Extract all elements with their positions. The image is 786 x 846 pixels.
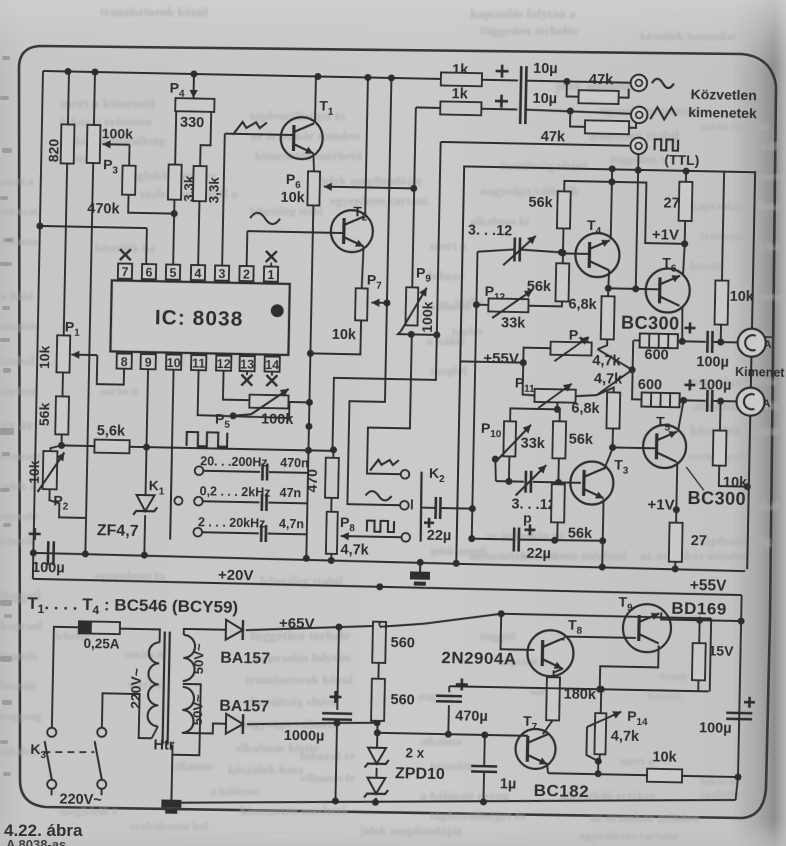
svg-text:10k: 10k	[729, 289, 754, 305]
svg-text:10k: 10k	[280, 190, 305, 206]
svg-text:+55V: +55V	[483, 350, 519, 368]
svg-text:6: 6	[145, 266, 152, 280]
svg-text:10k: 10k	[652, 749, 677, 765]
svg-text:az áramkör minden: az áramkör minden	[590, 810, 700, 825]
svg-text:A: A	[762, 398, 770, 410]
svg-text:(TTL): (TTL)	[664, 151, 699, 168]
svg-text:47k: 47k	[541, 129, 566, 145]
svg-text:56k: 56k	[528, 195, 553, 211]
svg-text:BC300: BC300	[621, 313, 680, 334]
svg-text:100k: 100k	[261, 411, 295, 428]
svg-text:100k: 100k	[102, 125, 134, 142]
svg-text:alkalma: alkalma	[420, 734, 461, 748]
svg-text:kapcsolás fol: kapcsolás fol	[690, 198, 762, 213]
svg-text:BC300: BC300	[687, 488, 746, 509]
svg-text:50V~: 50V~	[191, 643, 207, 674]
svg-text:22µ: 22µ	[427, 528, 452, 544]
svg-text:10µ: 10µ	[533, 61, 558, 77]
svg-text:10µ: 10µ	[532, 91, 557, 107]
svg-text:100µ: 100µ	[699, 720, 732, 737]
svg-text:készülék haszn: készülék haszn	[690, 424, 779, 439]
svg-text:10k: 10k	[26, 460, 42, 484]
svg-text:6,8k: 6,8k	[568, 297, 597, 314]
svg-text:6,8k: 6,8k	[571, 401, 600, 418]
svg-text:a há: a há	[758, 239, 780, 253]
svg-text:600: 600	[644, 347, 669, 363]
svg-text:14: 14	[265, 358, 279, 372]
svg-text:a háló: a háló	[0, 288, 34, 303]
svg-text:10: 10	[167, 356, 181, 370]
svg-text:3. . .12: 3. . .12	[511, 496, 556, 513]
svg-text:vill: vill	[762, 139, 779, 153]
svg-text:kimenetek: kimenetek	[688, 104, 757, 121]
svg-text:56k: 56k	[36, 402, 52, 426]
svg-text:13: 13	[240, 357, 254, 371]
svg-text:9: 9	[145, 356, 152, 370]
svg-text:1k: 1k	[451, 86, 468, 102]
svg-text:56k: 56k	[569, 432, 594, 448]
svg-text:+1V: +1V	[647, 496, 674, 514]
svg-text:+55V: +55V	[690, 577, 728, 595]
svg-text:820: 820	[45, 138, 61, 162]
svg-text:12: 12	[217, 357, 231, 371]
svg-text:330: 330	[180, 115, 205, 131]
svg-text:villamos: villamos	[170, 759, 213, 773]
svg-text:2 . . . 20kHz: 2 . . . 20kHz	[198, 515, 266, 530]
svg-text:jelek amplitúdóját: jelek amplitúdóját	[319, 173, 423, 188]
svg-text:27: 27	[663, 195, 679, 211]
svg-text:lehetől: lehetől	[0, 534, 35, 548]
svg-text:függetl: függetl	[480, 629, 516, 643]
svg-text:tápfesz: tápfesz	[0, 384, 37, 398]
svg-text:mert: mert	[760, 169, 785, 183]
svg-text:p: p	[523, 510, 532, 526]
svg-text:100k: 100k	[419, 301, 436, 333]
svg-text:fokozat: fokozat	[0, 204, 38, 218]
svg-text:IC: 8038: IC: 8038	[155, 306, 244, 331]
svg-text:A: A	[764, 339, 772, 351]
svg-text:3,3k: 3,3k	[206, 177, 222, 204]
svg-text:fokozat er: fokozat er	[300, 748, 356, 763]
svg-text:tranziszto: tranziszto	[700, 228, 755, 243]
svg-text:Közvetlen: Közvetlen	[691, 86, 757, 103]
svg-text:0,2 . . . 2kHz: 0,2 . . . 2kHz	[199, 484, 270, 499]
svg-text:feszült: feszült	[690, 259, 723, 273]
svg-text:jelek amplitúdóját: jelek amplitúdóját	[359, 823, 463, 838]
svg-text:BD169: BD169	[671, 599, 727, 619]
svg-text:egyenle: egyenle	[0, 509, 39, 523]
svg-text:4,7k: 4,7k	[340, 542, 369, 559]
svg-text:mert a: mert a	[0, 174, 34, 188]
svg-text:20. . .200Hz: 20. . .200Hz	[200, 454, 268, 469]
svg-text:2N2904A: 2N2904A	[441, 648, 517, 669]
svg-text:11: 11	[192, 357, 206, 371]
svg-text:4: 4	[194, 267, 201, 281]
svg-text:560: 560	[390, 635, 415, 651]
svg-text:1: 1	[267, 268, 274, 282]
svg-text:tranz: tranz	[660, 669, 688, 683]
svg-text:560: 560	[390, 692, 415, 708]
svg-text:2: 2	[243, 268, 250, 282]
svg-text:Kimenet: Kimenet	[735, 365, 785, 380]
svg-text:+20V: +20V	[218, 567, 254, 585]
svg-text:során ügyelni: során ügyelni	[700, 119, 770, 133]
svg-text:készülék hasz: készülék hasz	[228, 762, 304, 777]
svg-text:BC182: BC182	[534, 781, 590, 801]
svg-text:47n: 47n	[279, 486, 301, 500]
svg-text:4,7k: 4,7k	[611, 728, 640, 745]
svg-text:7: 7	[121, 265, 128, 279]
svg-text:4,7n: 4,7n	[279, 517, 304, 531]
svg-text:szabályozn: szabályozn	[700, 786, 761, 801]
svg-text:független terhelés: független terhelés	[480, 23, 578, 38]
svg-text:470: 470	[304, 469, 320, 493]
svg-text:a hálózati: a hálózati	[210, 784, 260, 798]
svg-text:33k: 33k	[520, 436, 545, 452]
svg-text:50V~: 50V~	[190, 694, 206, 725]
svg-text:foko: foko	[760, 199, 783, 213]
svg-text:kimenetén mérhető: kimenetén mérhető	[240, 803, 348, 818]
svg-text:tranzisztorok közül: tranzisztorok közül	[100, 4, 208, 19]
svg-text:egyenletes tartani: egyenletes tartani	[600, 103, 698, 118]
svg-text:470n: 470n	[280, 456, 309, 471]
svg-text:10k: 10k	[36, 345, 52, 369]
svg-text:kapcsolás folytán a: kapcsolás folytán a	[470, 6, 576, 21]
svg-text:0,25A: 0,25A	[83, 636, 120, 652]
svg-text:jelek ampli: jelek ampli	[429, 544, 488, 558]
svg-text:A 8038-as: A 8038-as	[6, 837, 66, 846]
svg-text:szabályozni kel: szabályozni kel	[130, 819, 208, 833]
svg-text:ZPD10: ZPD10	[395, 765, 445, 783]
svg-text:5: 5	[169, 266, 176, 280]
svg-text:470µ: 470µ	[455, 708, 488, 725]
svg-text:nagyság: nagyság	[0, 709, 41, 723]
svg-text:+65V: +65V	[279, 615, 315, 633]
svg-text:33k: 33k	[501, 315, 526, 331]
svg-text:villamos fe: villamos fe	[300, 771, 356, 785]
svg-text:tápfeszültség: tápfeszültség	[700, 533, 772, 548]
svg-text:8: 8	[121, 355, 128, 369]
svg-text:47k: 47k	[589, 72, 614, 88]
svg-text:3. . .12: 3. . .12	[468, 223, 513, 240]
svg-text:mert a kimeneti: mert a kimeneti	[60, 97, 155, 112]
svg-text:szabál: szabál	[745, 498, 780, 513]
svg-text:során ü: során ü	[125, 647, 164, 661]
svg-text:mert a: mert a	[620, 754, 654, 768]
svg-text:220V~: 220V~	[59, 791, 102, 808]
svg-text:tápfeszültséget és: tápfeszültséget és	[430, 808, 526, 823]
svg-text:mert a: mert a	[430, 238, 467, 253]
svg-text:feszültség eltéré: feszültség eltéré	[500, 158, 588, 173]
svg-text:szabál: szabál	[0, 353, 35, 368]
svg-text:27: 27	[691, 533, 707, 549]
svg-text:100µ: 100µ	[696, 354, 729, 371]
svg-text:tápfes: tápfes	[452, 324, 483, 338]
svg-text:1000µ: 1000µ	[284, 728, 325, 745]
svg-text:5,6k: 5,6k	[97, 423, 126, 440]
svg-text:egyenletes tartani: egyenletes tartani	[580, 828, 678, 843]
svg-text:BA157: BA157	[219, 698, 269, 716]
svg-text:során ü: során ü	[100, 384, 139, 398]
svg-text:100µ: 100µ	[699, 377, 732, 394]
svg-text:3: 3	[218, 267, 225, 281]
svg-text:megfele: megfele	[0, 319, 40, 333]
svg-text:15V: 15V	[708, 642, 734, 659]
svg-text:10k: 10k	[332, 327, 357, 343]
svg-text:1µ: 1µ	[500, 776, 517, 792]
svg-text:600: 600	[638, 377, 663, 393]
svg-text:BA157: BA157	[220, 650, 270, 668]
svg-text:ZF4,7: ZF4,7	[97, 522, 139, 540]
svg-text:feszült: feszült	[0, 678, 37, 693]
svg-text:22µ: 22µ	[526, 546, 551, 562]
svg-text:az áramkör minden: az áramkör minden	[250, 128, 360, 143]
svg-text:megf: megf	[760, 289, 786, 303]
svg-text:az áramkör minden: az áramkör minden	[640, 548, 750, 563]
svg-text:2 x: 2 x	[405, 745, 425, 760]
svg-text:készülék használat: készülék használat	[640, 29, 736, 43]
svg-text:+1V: +1V	[652, 226, 679, 244]
svg-text:100µ: 100µ	[32, 560, 65, 577]
svg-text:fokoza: fokoza	[428, 268, 465, 283]
svg-text:kapcsol: kapcsol	[0, 618, 42, 633]
svg-text:220V~: 220V~	[127, 668, 144, 709]
